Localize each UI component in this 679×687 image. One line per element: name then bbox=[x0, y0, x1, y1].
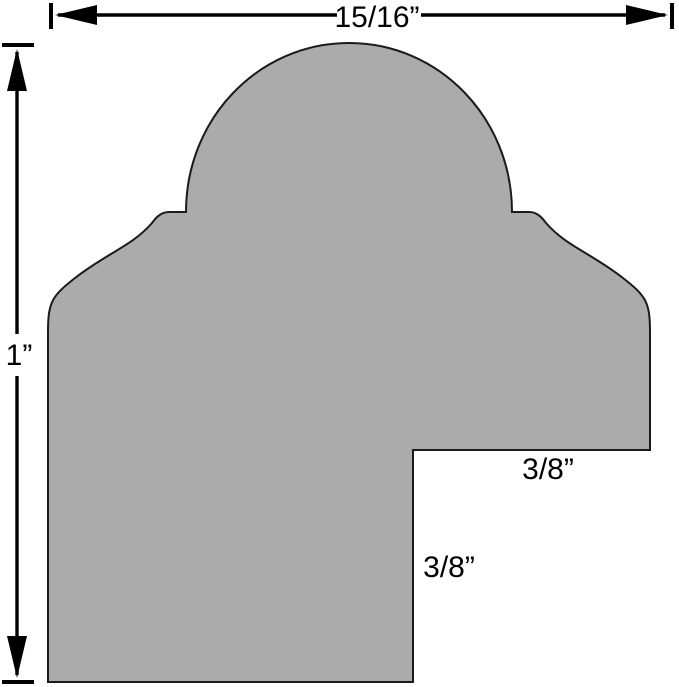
rabbet-depth-label: 3/8” bbox=[423, 551, 475, 584]
diagram-canvas: 15/16” 1” 3/8” 3/8” bbox=[0, 0, 679, 687]
moulding-profile-diagram: 15/16” 1” 3/8” 3/8” bbox=[0, 0, 679, 687]
overall-height-label: 1” bbox=[6, 339, 33, 372]
overall-height-dimension: 1” bbox=[2, 45, 34, 682]
moulding-profile-shape bbox=[48, 43, 650, 682]
rabbet-width-label: 3/8” bbox=[522, 453, 574, 486]
overall-width-label: 15/16” bbox=[334, 1, 419, 34]
overall-width-dimension: 15/16” bbox=[51, 1, 672, 34]
